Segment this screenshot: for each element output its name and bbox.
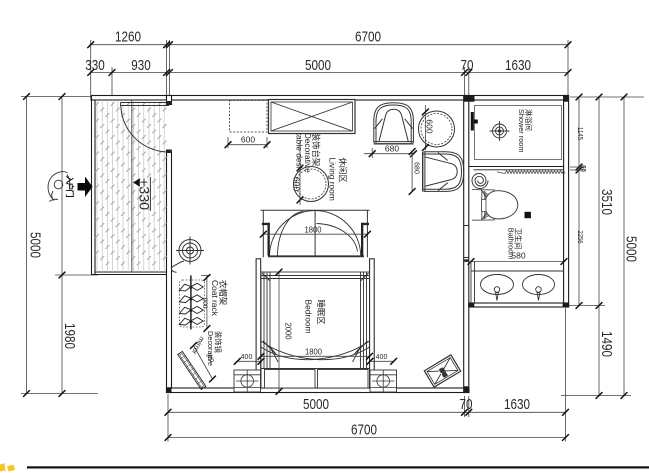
svg-text:Living room: Living room (328, 158, 338, 201)
svg-text:330: 330 (85, 57, 105, 74)
svg-text:70: 70 (461, 57, 474, 74)
svg-text:60: 60 (579, 165, 588, 172)
svg-text:400: 400 (376, 354, 388, 361)
svg-text:1630: 1630 (505, 57, 531, 74)
svg-text:900: 900 (201, 298, 208, 309)
svg-text:2256: 2256 (576, 231, 585, 244)
svg-text:1630: 1630 (504, 396, 530, 413)
svg-text:5000: 5000 (27, 232, 44, 258)
svg-text:3510: 3510 (598, 189, 615, 215)
svg-text:Bedroom: Bedroom (304, 300, 314, 334)
svg-text:Coat rack: Coat rack (210, 280, 220, 317)
svg-text:680: 680 (385, 144, 399, 154)
svg-text:Decorative: Decorative (206, 331, 215, 366)
svg-text:6700: 6700 (355, 29, 381, 46)
svg-text:930: 930 (131, 57, 151, 74)
svg-text:70: 70 (460, 396, 473, 413)
svg-text:600: 600 (425, 119, 435, 133)
svg-text:+330: +330 (137, 178, 152, 210)
svg-text:睡眠区: 睡眠区 (316, 300, 326, 325)
svg-text:休闲区: 休闲区 (338, 158, 348, 183)
svg-text:6700: 6700 (351, 422, 377, 439)
svg-text:5000: 5000 (303, 396, 329, 413)
svg-text:600: 600 (292, 177, 302, 191)
svg-text:1800: 1800 (305, 347, 322, 357)
svg-text:1145: 1145 (576, 127, 585, 140)
svg-text:1260: 1260 (115, 29, 141, 46)
svg-text:5000: 5000 (623, 236, 640, 262)
svg-text:1490: 1490 (598, 331, 615, 357)
svg-text:1800: 1800 (305, 225, 322, 235)
svg-text:Shower room: Shower room (517, 109, 526, 152)
svg-text:2000: 2000 (284, 323, 294, 340)
svg-text:1980: 1980 (61, 323, 78, 349)
svg-text:400: 400 (241, 354, 253, 361)
svg-text:680: 680 (413, 162, 420, 174)
svg-text:5000: 5000 (305, 57, 331, 74)
svg-text:600: 600 (241, 135, 255, 145)
svg-text:入户门: 入户门 (65, 175, 75, 198)
svg-text:580: 580 (511, 251, 525, 261)
